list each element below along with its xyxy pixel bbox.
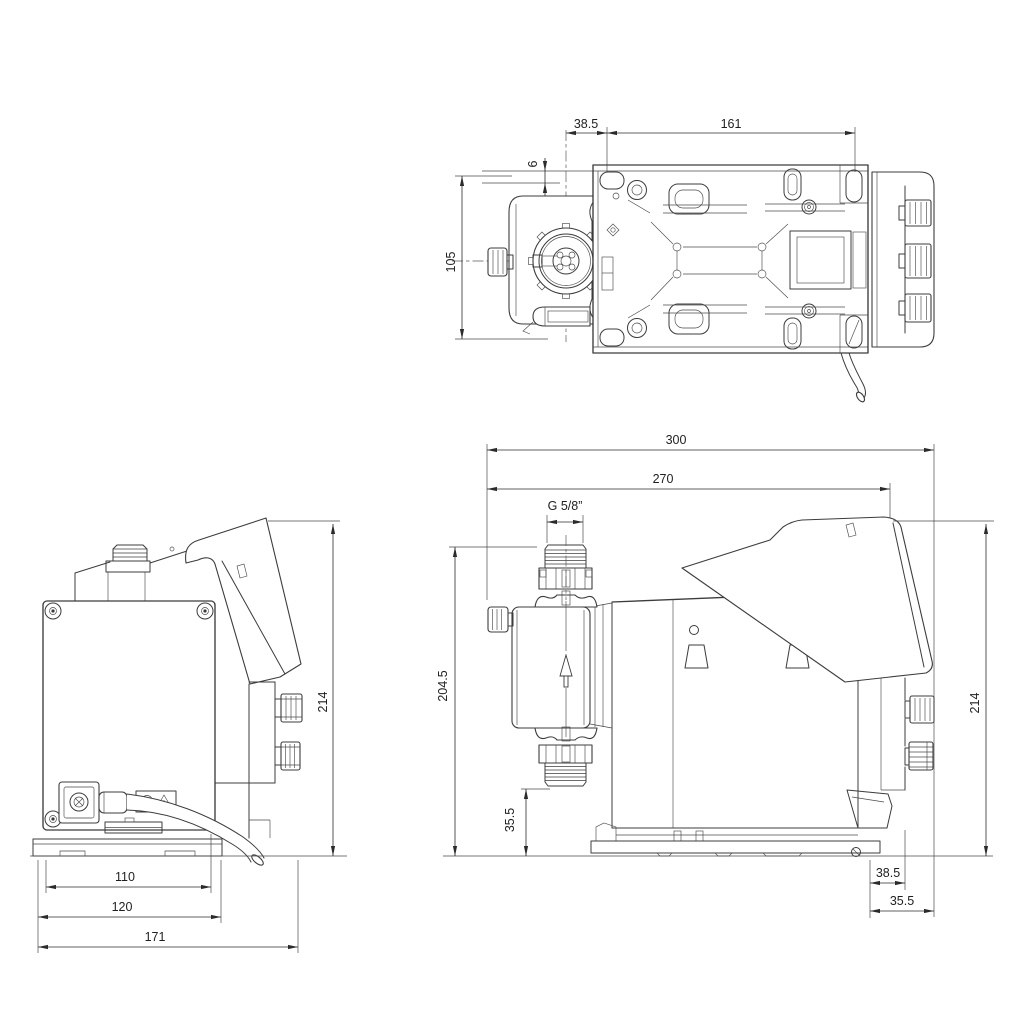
dim-label-6: 6 [526, 160, 540, 167]
vent-knob-side [488, 607, 513, 632]
dim-label-300: 300 [666, 433, 687, 447]
dim-label-204-5: 204.5 [436, 670, 450, 701]
dim-label-171: 171 [145, 930, 166, 944]
dim-label-214-front: 214 [316, 692, 330, 713]
dim-label-38-5-side: 38.5 [876, 866, 900, 880]
connection-knobs-side [905, 696, 934, 770]
mains-cable-top [841, 353, 866, 403]
dosing-head-side [512, 591, 597, 741]
connector-box-top [872, 172, 934, 347]
side-view: 300 270 G 5/8” 204.5 35.5 214 38.5 35.5 [436, 433, 994, 918]
dim-label-35-5-right: 35.5 [890, 894, 914, 908]
side-compartment-front [215, 682, 275, 838]
dim-label-105: 105 [444, 252, 458, 273]
dim-label-161: 161 [721, 117, 742, 131]
dim-label-35-5-left: 35.5 [503, 808, 517, 832]
dim-label-270: 270 [653, 472, 674, 486]
back-bracket [847, 790, 892, 828]
front-view: 110 120 171 214 [30, 518, 347, 953]
dim-label-38-5-top: 38.5 [574, 117, 598, 131]
dim-label-214-side: 214 [968, 693, 982, 714]
dim-label-thread: G 5/8” [548, 499, 583, 513]
suction-valve [539, 745, 592, 786]
head-bracket [590, 603, 612, 728]
connection-knobs-front [275, 694, 302, 770]
discharge-valve [539, 545, 592, 589]
dim-label-120: 120 [112, 900, 133, 914]
pump-dimensional-drawing: 38.5 161 6 105 [0, 0, 1024, 1024]
mounting-plate-top [593, 165, 868, 353]
front-top-body [75, 545, 187, 601]
dim-label-110: 110 [115, 870, 135, 884]
top-view: 38.5 161 6 105 [444, 117, 934, 403]
drawing-canvas: 38.5 161 6 105 [0, 0, 1024, 1024]
